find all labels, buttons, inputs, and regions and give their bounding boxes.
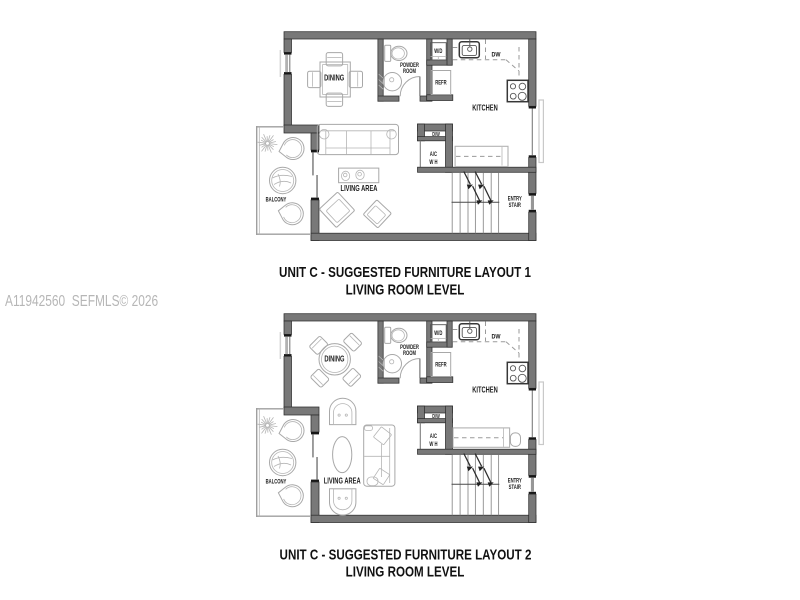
svg-text:D/W: D/W: [432, 413, 440, 420]
svg-text:W/D: W/D: [434, 331, 442, 338]
svg-text:BALCONY: BALCONY: [266, 197, 287, 204]
svg-text:A11942560 SEFMLS© 2026: A11942560 SEFMLS© 2026: [5, 291, 158, 309]
svg-text:LIVING ROOM LEVEL: LIVING ROOM LEVEL: [346, 281, 465, 298]
svg-text:KITCHEN: KITCHEN: [472, 387, 498, 395]
svg-text:W/D: W/D: [434, 49, 442, 56]
svg-text:STAIR: STAIR: [509, 484, 521, 491]
svg-text:LIVING AREA: LIVING AREA: [324, 478, 361, 486]
svg-text:BALCONY: BALCONY: [266, 479, 287, 486]
svg-text:UNIT C - SUGGESTED FURNITURE L: UNIT C - SUGGESTED FURNITURE LAYOUT 1: [279, 264, 531, 281]
svg-text:A/C: A/C: [430, 152, 437, 159]
svg-text:REFR: REFR: [435, 362, 447, 369]
svg-text:STAIR: STAIR: [509, 202, 521, 209]
svg-text:ROOM: ROOM: [403, 350, 416, 357]
svg-text:W H: W H: [429, 441, 437, 448]
svg-text:REFR: REFR: [435, 80, 447, 87]
svg-text:KITCHEN: KITCHEN: [472, 105, 498, 113]
svg-text:ROOM: ROOM: [403, 68, 416, 75]
svg-text:W H: W H: [429, 159, 437, 166]
svg-text:DW: DW: [491, 52, 500, 58]
svg-text:LIVING ROOM LEVEL: LIVING ROOM LEVEL: [346, 563, 465, 580]
svg-text:D/W: D/W: [432, 131, 440, 138]
svg-text:DW: DW: [491, 334, 500, 340]
svg-text:A/C: A/C: [430, 434, 437, 441]
svg-text:LIVING AREA: LIVING AREA: [341, 185, 378, 193]
svg-text:UNIT C - SUGGESTED FURNITURE L: UNIT C - SUGGESTED FURNITURE LAYOUT 2: [280, 546, 532, 563]
svg-text:DINING: DINING: [324, 75, 344, 83]
svg-text:DINING: DINING: [324, 356, 344, 364]
